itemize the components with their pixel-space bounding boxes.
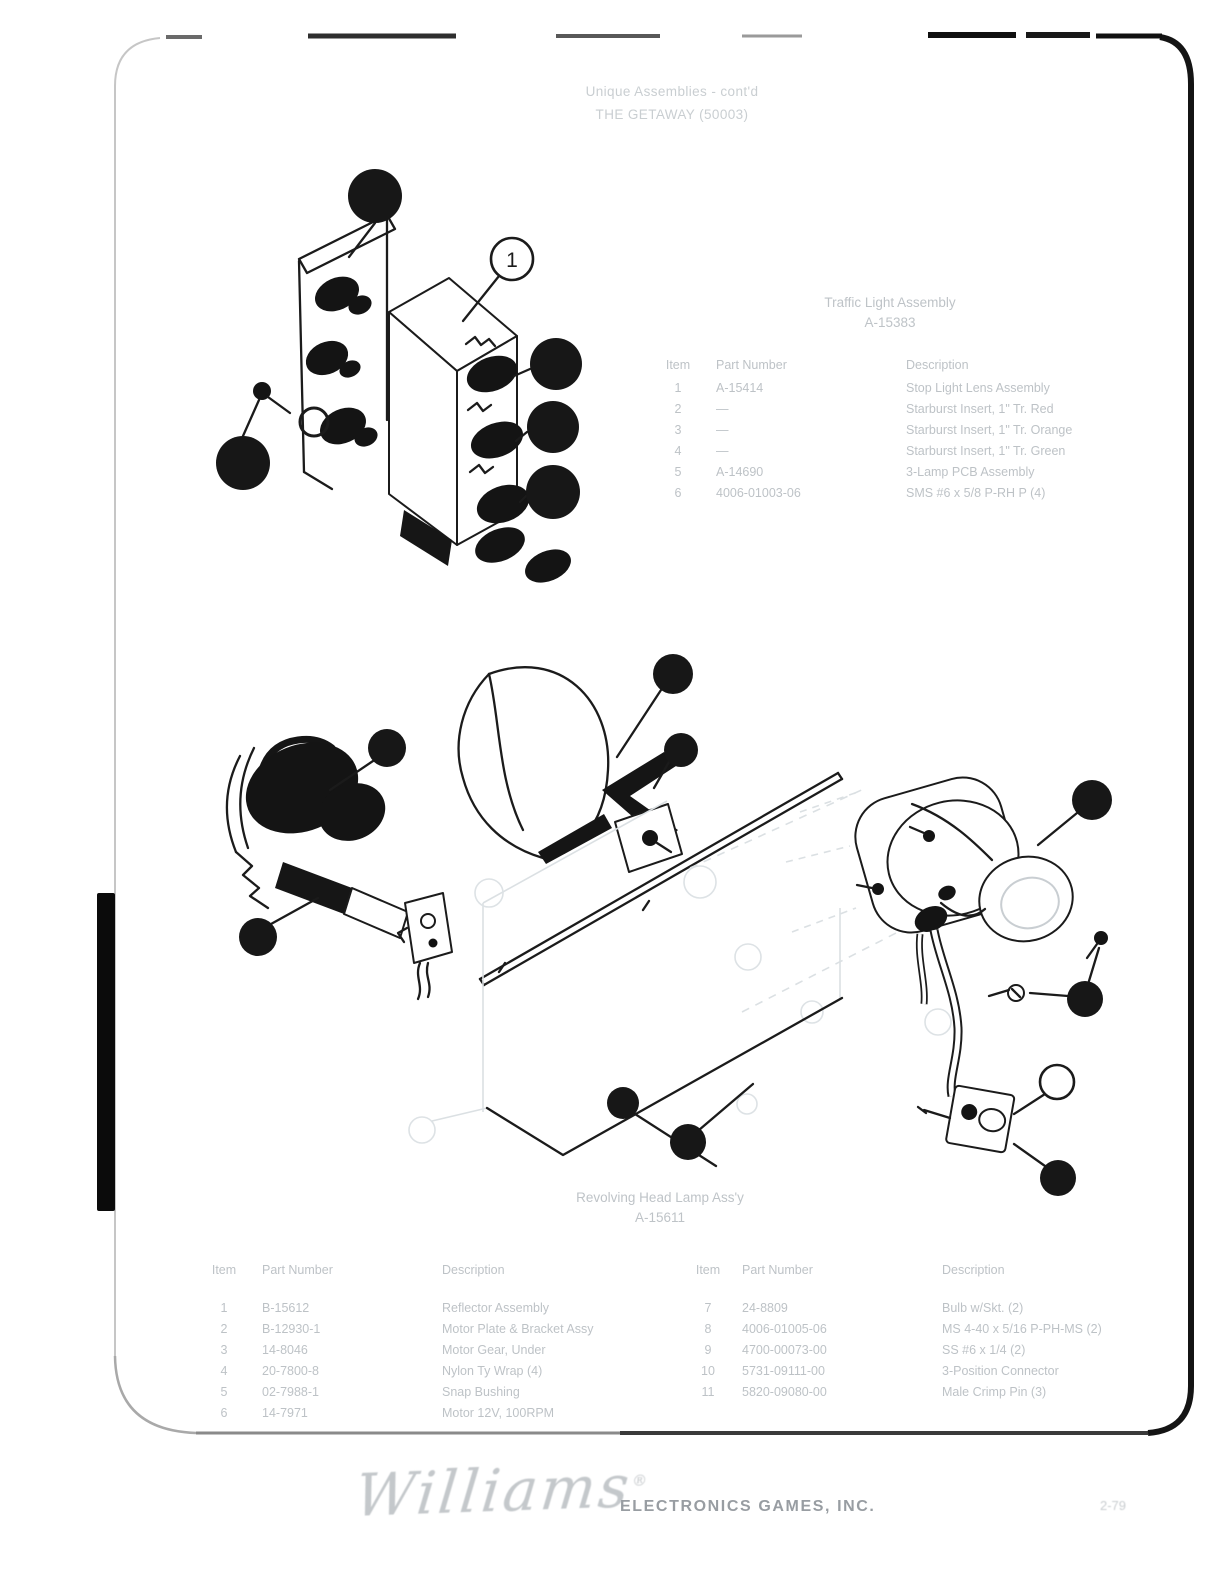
callout-balloon bbox=[348, 169, 402, 223]
beacon-exploded-view bbox=[227, 654, 1112, 1196]
traffic-light-part-no: A-15383 bbox=[700, 313, 1080, 333]
cell-desc: 3-Lamp PCB Assembly bbox=[906, 465, 1100, 479]
beacon-reflector-dome bbox=[459, 654, 698, 872]
cell-item: 3 bbox=[196, 1343, 252, 1357]
traffic-light-title-block: Traffic Light Assembly A-15383 bbox=[700, 293, 1080, 333]
cell-desc: 3-Position Connector bbox=[942, 1364, 1174, 1378]
beacon-parts-table-right: Item Part Number Description 7 24-8809 B… bbox=[684, 1263, 1174, 1406]
table-row: 2 — Starburst Insert, 1" Tr. Red bbox=[650, 402, 1100, 416]
screw-icon bbox=[1094, 931, 1108, 945]
cell-part: 24-8809 bbox=[742, 1301, 932, 1315]
cell-part: 14-7971 bbox=[262, 1406, 432, 1420]
page-header: Unique Assemblies - cont'd THE GETAWAY (… bbox=[472, 80, 872, 126]
cell-part: B-12930-1 bbox=[262, 1322, 432, 1336]
cell-desc: Male Crimp Pin (3) bbox=[942, 1385, 1174, 1399]
beacon-part-no: A-15611 bbox=[450, 1208, 870, 1228]
screw-icon bbox=[872, 883, 884, 895]
col-description: Description bbox=[906, 358, 1100, 372]
table-header-row: Item Part Number Description bbox=[196, 1263, 666, 1277]
cell-item: 2 bbox=[650, 402, 706, 416]
callout-balloon bbox=[239, 918, 277, 956]
cell-desc: Stop Light Lens Assembly bbox=[906, 381, 1100, 395]
faded-callout-balloon bbox=[409, 1117, 435, 1143]
beacon-parts-table-left: Item Part Number Description 1 B-15612 R… bbox=[196, 1263, 666, 1427]
cell-item: 3 bbox=[650, 423, 706, 437]
cell-part: A-14690 bbox=[716, 465, 896, 479]
cell-part: 4006-01003-06 bbox=[716, 486, 896, 500]
table-row: 3 — Starburst Insert, 1" Tr. Orange bbox=[650, 423, 1100, 437]
williams-logo-text: Williams bbox=[352, 1452, 635, 1530]
cell-item: 11 bbox=[684, 1385, 732, 1399]
cell-item: 6 bbox=[650, 486, 706, 500]
table-row: 10 5731-09111-00 3-Position Connector bbox=[684, 1364, 1174, 1378]
callout-balloon bbox=[664, 733, 698, 767]
col-item: Item bbox=[684, 1263, 732, 1277]
cell-desc: MS 4-40 x 5/16 P-PH-MS (2) bbox=[942, 1322, 1174, 1336]
cell-item: 5 bbox=[196, 1385, 252, 1399]
cell-item: 2 bbox=[196, 1322, 252, 1336]
cell-desc: Nylon Ty Wrap (4) bbox=[442, 1364, 666, 1378]
callout-balloon bbox=[530, 338, 582, 390]
callout-balloon bbox=[670, 1124, 706, 1160]
screw-icon bbox=[923, 830, 935, 842]
cell-item: 4 bbox=[196, 1364, 252, 1378]
cell-item: 1 bbox=[196, 1301, 252, 1315]
cell-part: 20-7800-8 bbox=[262, 1364, 432, 1378]
company-name: ELECTRONICS GAMES, INC. bbox=[620, 1498, 875, 1516]
table-row: 9 4700-00073-00 SS #6 x 1/4 (2) bbox=[684, 1343, 1174, 1357]
col-item: Item bbox=[196, 1263, 252, 1277]
cell-part: B-15612 bbox=[262, 1301, 432, 1315]
beacon-title-block: Revolving Head Lamp Ass'y A-15611 bbox=[450, 1188, 870, 1228]
cell-part: — bbox=[716, 423, 896, 437]
cell-desc: Motor 12V, 100RPM bbox=[442, 1406, 666, 1420]
cell-desc: Motor Plate & Bracket Assy bbox=[442, 1322, 666, 1336]
table-header-row: Item Part Number Description bbox=[650, 358, 1100, 372]
cell-item: 9 bbox=[684, 1343, 732, 1357]
col-part-number: Part Number bbox=[716, 358, 896, 372]
beacon-drive-motor bbox=[786, 768, 1112, 1196]
connector bbox=[946, 1085, 1015, 1153]
scanned-manual-page: 1 bbox=[0, 0, 1227, 1586]
table-row: 3 14-8046 Motor Gear, Under bbox=[196, 1343, 666, 1357]
callout-1-label: 1 bbox=[506, 249, 518, 272]
cell-item: 6 bbox=[196, 1406, 252, 1420]
col-description: Description bbox=[442, 1263, 666, 1277]
callout-balloon bbox=[526, 465, 580, 519]
callout-balloon bbox=[368, 729, 406, 767]
cell-part: 5731-09111-00 bbox=[742, 1364, 932, 1378]
williams-logo: Williams® bbox=[352, 1452, 650, 1530]
scan-artifact-bar bbox=[97, 893, 115, 1211]
cell-item: 8 bbox=[684, 1322, 732, 1336]
cell-item: 1 bbox=[650, 381, 706, 395]
table-row: 1 A-15414 Stop Light Lens Assembly bbox=[650, 381, 1100, 395]
table-row: 11 5820-09080-00 Male Crimp Pin (3) bbox=[684, 1385, 1174, 1399]
cell-part: 02-7988-1 bbox=[262, 1385, 432, 1399]
col-description: Description bbox=[942, 1263, 1174, 1277]
table-row: 5 02-7988-1 Snap Bushing bbox=[196, 1385, 666, 1399]
traffic-light-parts-table: Item Part Number Description 1 A-15414 S… bbox=[650, 358, 1100, 507]
callout-balloon bbox=[1040, 1160, 1076, 1196]
callout-balloon bbox=[1067, 981, 1103, 1017]
page-header-line1: Unique Assemblies - cont'd bbox=[472, 80, 872, 103]
table-row: 1 B-15612 Reflector Assembly bbox=[196, 1301, 666, 1315]
traffic-light-title: Traffic Light Assembly bbox=[700, 293, 1080, 313]
col-part-number: Part Number bbox=[262, 1263, 432, 1277]
cell-part: 14-8046 bbox=[262, 1343, 432, 1357]
page-number: 2-79 bbox=[1100, 1498, 1126, 1513]
beacon-motor-bracket bbox=[227, 726, 452, 999]
cell-part: — bbox=[716, 444, 896, 458]
table-row: 5 A-14690 3-Lamp PCB Assembly bbox=[650, 465, 1100, 479]
col-item: Item bbox=[650, 358, 706, 372]
table-row: 8 4006-01005-06 MS 4-40 x 5/16 P-PH-MS (… bbox=[684, 1322, 1174, 1336]
registered-mark: ® bbox=[631, 1471, 648, 1490]
cell-desc: Motor Gear, Under bbox=[442, 1343, 666, 1357]
cell-part: 4006-01005-06 bbox=[742, 1322, 932, 1336]
cell-item: 5 bbox=[650, 465, 706, 479]
cell-desc: Bulb w/Skt. (2) bbox=[942, 1301, 1174, 1315]
cell-desc: Starburst Insert, 1" Tr. Red bbox=[906, 402, 1100, 416]
cell-item: 7 bbox=[684, 1301, 732, 1315]
cell-desc: SMS #6 x 5/8 P-RH P (4) bbox=[906, 486, 1100, 500]
table-row: 4 20-7800-8 Nylon Ty Wrap (4) bbox=[196, 1364, 666, 1378]
cell-part: 5820-09080-00 bbox=[742, 1385, 932, 1399]
cell-desc: Snap Bushing bbox=[442, 1385, 666, 1399]
table-row: 2 B-12930-1 Motor Plate & Bracket Assy bbox=[196, 1322, 666, 1336]
cell-part: 4700-00073-00 bbox=[742, 1343, 932, 1357]
table-row: 4 — Starburst Insert, 1" Tr. Green bbox=[650, 444, 1100, 458]
col-part-number: Part Number bbox=[742, 1263, 932, 1277]
cell-desc: Reflector Assembly bbox=[442, 1301, 666, 1315]
cell-desc: Starburst Insert, 1" Tr. Green bbox=[906, 444, 1100, 458]
table-header-row: Item Part Number Description bbox=[684, 1263, 1174, 1277]
page-header-line2: THE GETAWAY (50003) bbox=[472, 103, 872, 126]
cell-part: — bbox=[716, 402, 896, 416]
callout-balloon bbox=[653, 654, 693, 694]
cell-item: 10 bbox=[684, 1364, 732, 1378]
callout-balloon bbox=[216, 436, 270, 490]
beacon-title: Revolving Head Lamp Ass'y bbox=[450, 1188, 870, 1208]
cell-desc: SS #6 x 1/4 (2) bbox=[942, 1343, 1174, 1357]
callout-balloon bbox=[1072, 780, 1112, 820]
table-row: 7 24-8809 Bulb w/Skt. (2) bbox=[684, 1301, 1174, 1315]
traffic-light-exploded-view: 1 bbox=[216, 169, 582, 589]
cell-item: 4 bbox=[650, 444, 706, 458]
callout-balloon bbox=[607, 1087, 639, 1119]
open-callout-balloon bbox=[1040, 1065, 1074, 1099]
cell-part: A-15414 bbox=[716, 381, 896, 395]
table-row: 6 14-7971 Motor 12V, 100RPM bbox=[196, 1406, 666, 1420]
cell-desc: Starburst Insert, 1" Tr. Orange bbox=[906, 423, 1100, 437]
table-row: 6 4006-01003-06 SMS #6 x 5/8 P-RH P (4) bbox=[650, 486, 1100, 500]
callout-balloon bbox=[527, 401, 579, 453]
